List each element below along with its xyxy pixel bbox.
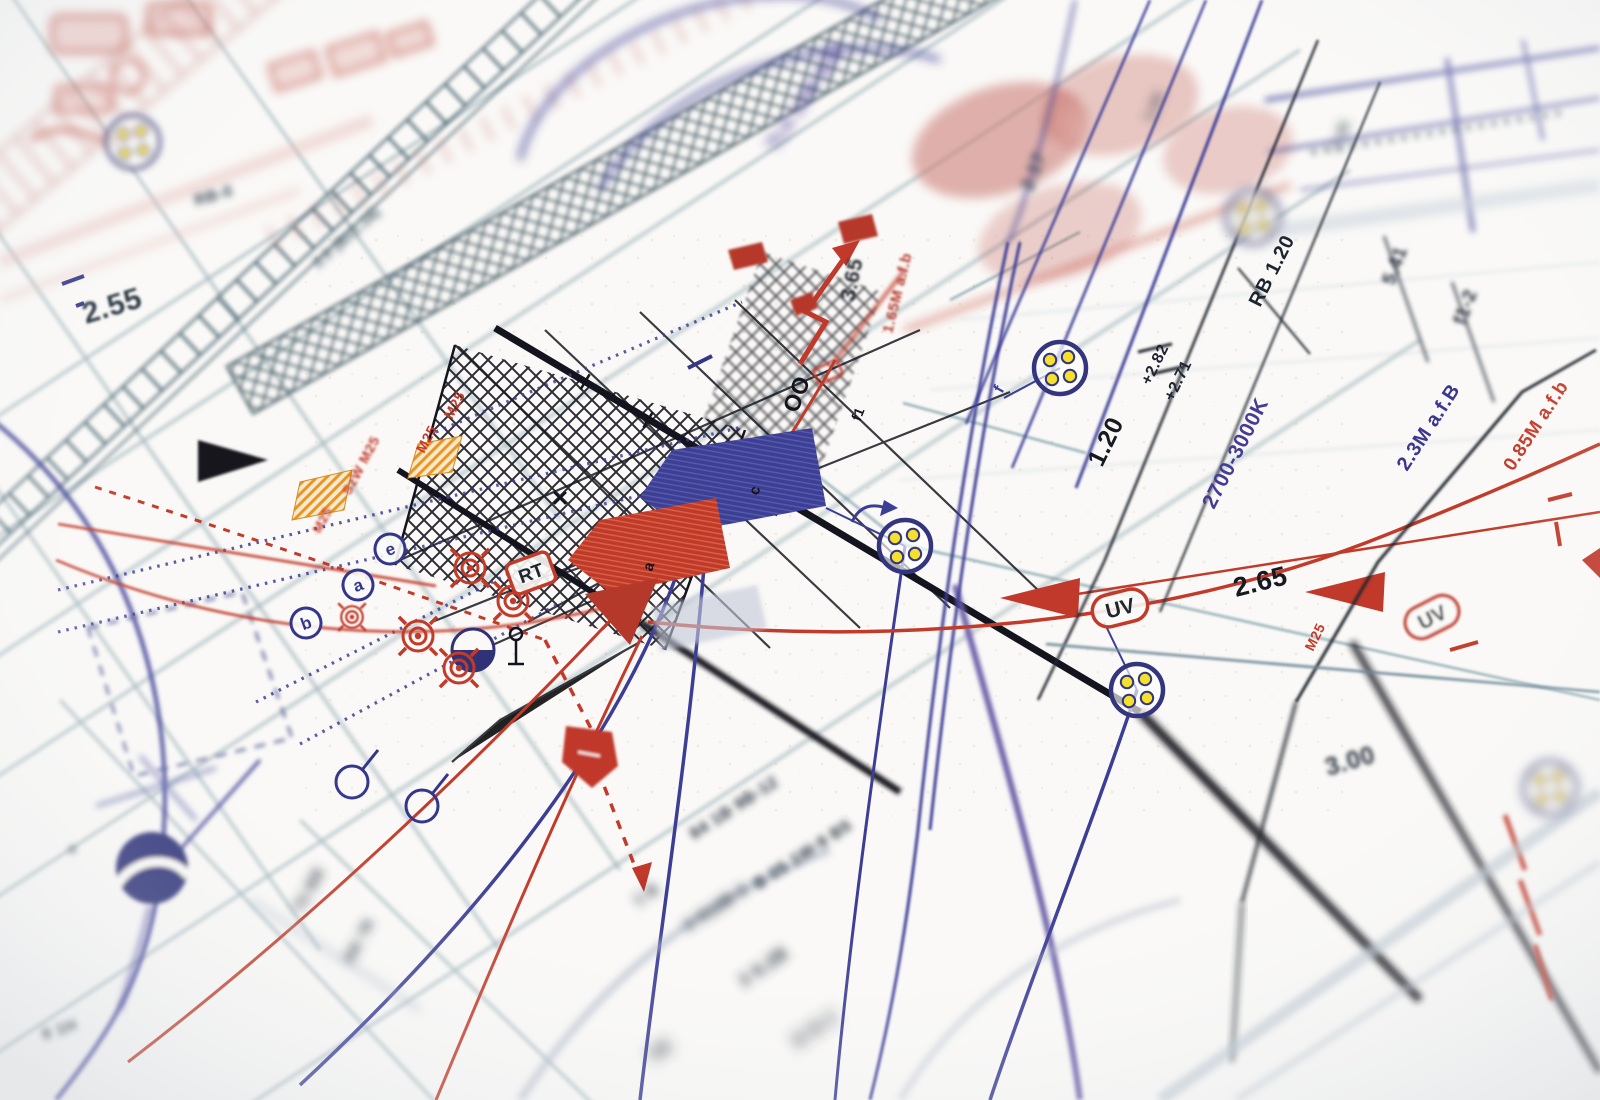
vignette-overlay <box>0 0 1600 1100</box>
blueprint-photo: eab RTUVUV 2.55RB-02.0 (B±1.18)3.651.65M… <box>0 0 1600 1100</box>
blueprint-svg: eab RTUVUV 2.55RB-02.0 (B±1.18)3.651.65M… <box>0 0 1600 1100</box>
